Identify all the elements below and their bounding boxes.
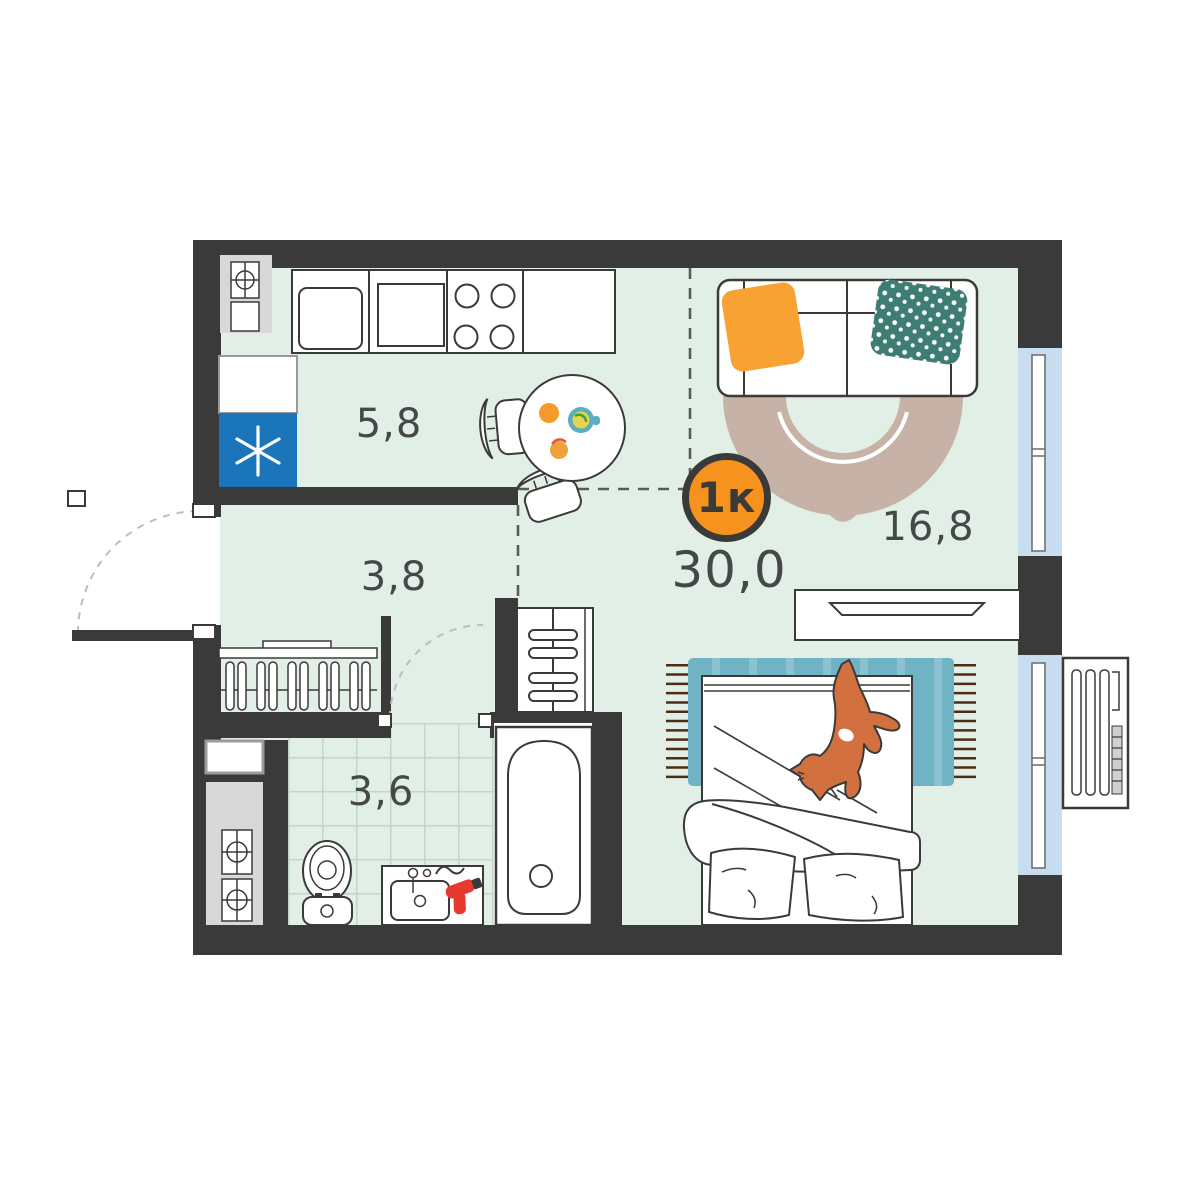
floorplan-drawing (0, 0, 1200, 1200)
wall-niche (206, 741, 263, 773)
kitchen-counter (292, 270, 615, 353)
floorplan-canvas: 5,8 3,8 3,6 16,8 30,0 1к (0, 0, 1200, 1200)
room-label-hallway: 3,8 (314, 557, 474, 597)
bed-pillow (804, 854, 903, 921)
tv (830, 603, 984, 615)
closet-shelves (517, 608, 593, 712)
total-area-label: 30,0 (649, 545, 809, 595)
pillow-orange (720, 281, 806, 374)
bathtub (496, 727, 592, 925)
window-frame (1032, 355, 1045, 551)
entrance-door-swing-arc (78, 511, 200, 633)
toilet (303, 841, 352, 925)
vent-shaft (206, 741, 263, 925)
oven (378, 284, 444, 346)
hangers (226, 662, 370, 710)
entrance-door-leaf (72, 630, 202, 641)
coat-rack (219, 641, 377, 710)
dining-table (519, 375, 625, 481)
apartment-type-label: 1к (697, 473, 757, 522)
bathroom-sink (382, 866, 490, 925)
window-frame (1032, 663, 1045, 868)
apartment-type-badge: 1к (682, 453, 771, 542)
bathroom-door-swing-arc (390, 625, 483, 718)
pillow-teal (869, 278, 969, 366)
bed-pillow (709, 849, 795, 919)
vent-shaft (220, 255, 272, 333)
door-jambs (68, 491, 492, 727)
room-label-living: 16,8 (848, 507, 1008, 547)
room-label-bathroom: 3,6 (301, 772, 461, 812)
tv-stand (795, 590, 1020, 640)
kitchen-sink (299, 288, 362, 349)
orange-fruit (539, 403, 559, 423)
corridor-door-jamb (68, 491, 85, 506)
air-conditioner (1063, 658, 1128, 808)
fridge (219, 356, 297, 487)
bed (684, 660, 920, 925)
room-label-kitchen: 5,8 (309, 404, 469, 444)
